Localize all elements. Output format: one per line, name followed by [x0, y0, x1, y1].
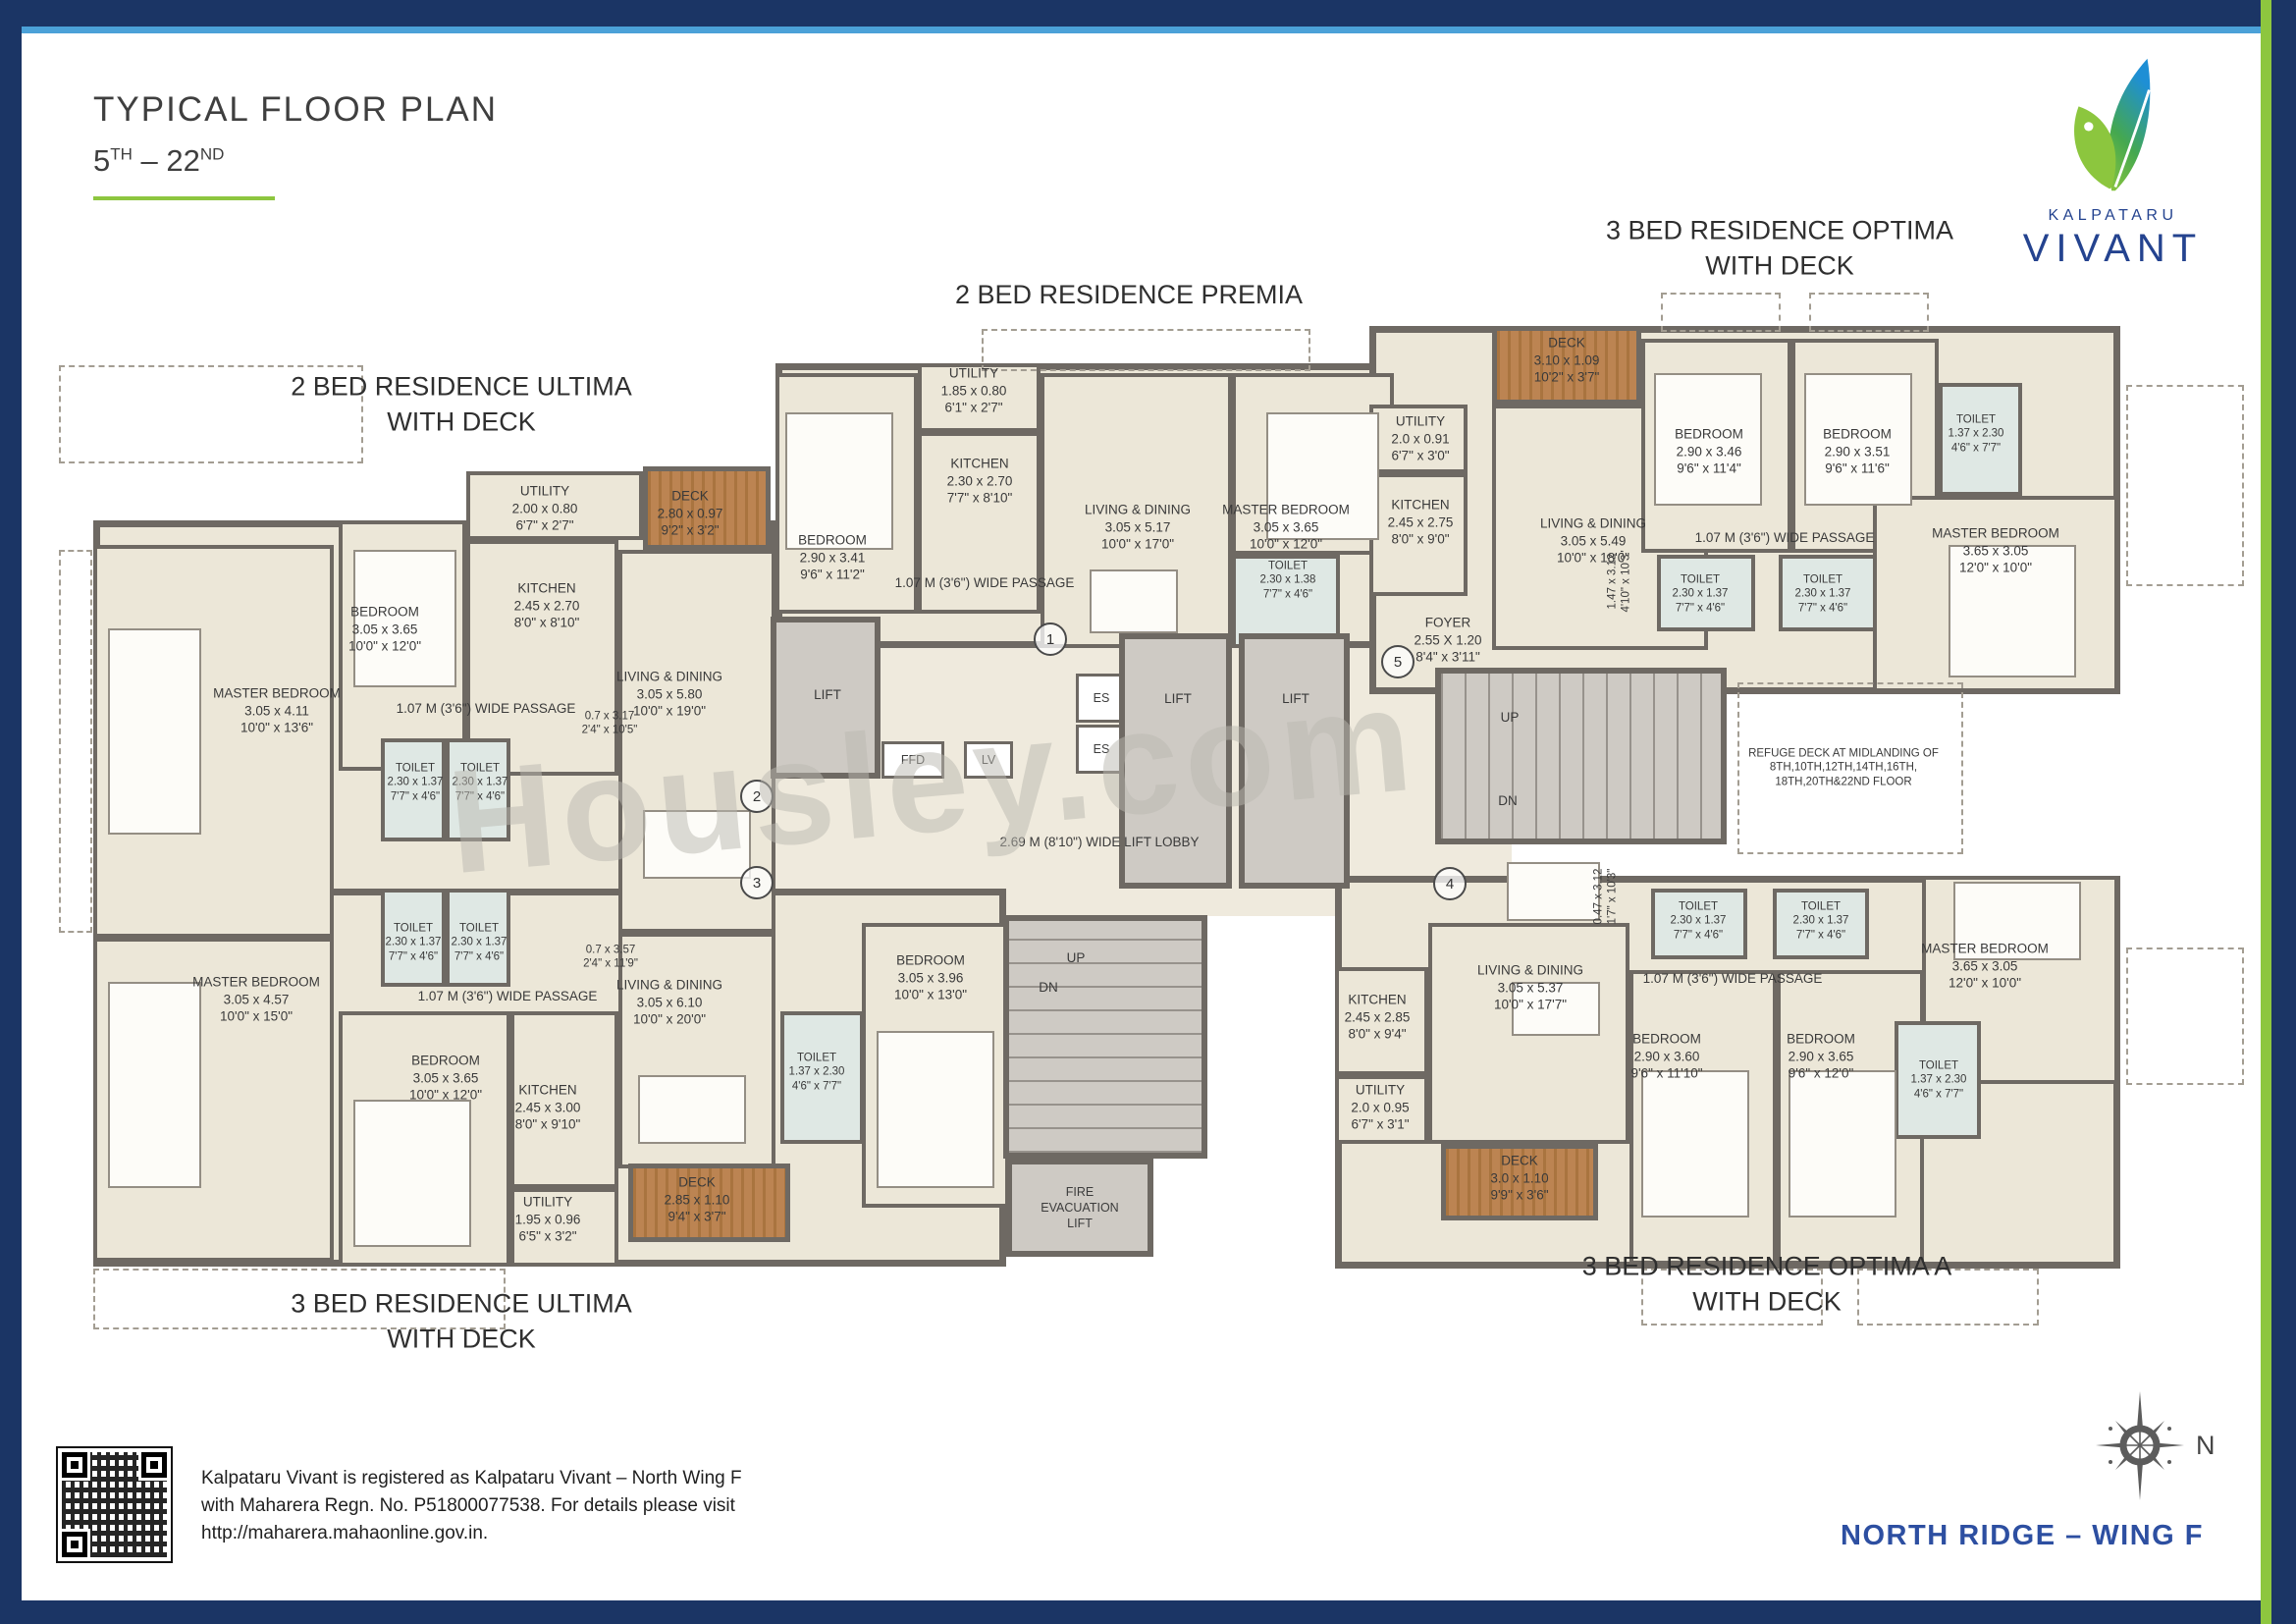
- room-label: DECK3.0 x 1.109'9" x 3'6": [1490, 1153, 1548, 1205]
- room-label: TOILET2.30 x 1.377'7" x 4'6": [1673, 572, 1729, 615]
- logo-project-name: VIVANT: [2007, 227, 2218, 271]
- room-label: DECK2.80 x 0.979'2" x 3'2": [658, 488, 723, 540]
- apartment-title-3bed-optima-a: 3 BED RESIDENCE OPTIMA A WITH DECK: [1582, 1249, 1952, 1321]
- floor-from: 5: [93, 143, 110, 178]
- kalpataru-vivant-logo: KALPATARU VIVANT: [2007, 51, 2218, 271]
- room-label: UTILITY1.95 x 0.966'5" x 3'2": [515, 1194, 581, 1246]
- floor-range: 5TH – 22ND: [93, 143, 224, 179]
- rera-registration-text: Kalpataru Vivant is registered as Kalpat…: [201, 1465, 742, 1547]
- apartment-title-line: 3 BED RESIDENCE OPTIMA A: [1582, 1249, 1952, 1284]
- refuge-deck-label: REFUGE DECK AT MIDLANDING OF8TH,10TH,12T…: [1748, 746, 1939, 788]
- border-top-accent: [0, 27, 2296, 33]
- rera-line: Kalpataru Vivant is registered as Kalpat…: [201, 1465, 742, 1492]
- room-label: TOILET2.30 x 1.377'7" x 4'6": [1795, 572, 1851, 615]
- apartment-title-line: 2 BED RESIDENCE ULTIMA: [291, 369, 632, 405]
- room-label: UTILITY2.0 x 0.916'7" x 3'0": [1391, 413, 1449, 465]
- bed-icon: [108, 628, 201, 835]
- room-label: LIVING & DINING3.05 x 6.1010'0" x 20'0": [616, 977, 722, 1029]
- balcony-outline: [2126, 947, 2244, 1085]
- passage-label: 1.07 M (3'6") WIDE PASSAGE: [1695, 529, 1875, 547]
- lift-label: LIFT: [814, 686, 841, 704]
- stairs-down-label: DN: [1039, 979, 1058, 997]
- stairs-up-label: UP: [1067, 949, 1086, 967]
- balcony-outline: [2126, 385, 2244, 586]
- dim-label: 1.47 x 3.124'10" x 10'3": [1606, 550, 1634, 612]
- rera-line: with Maharera Regn. No. P51800077538. Fo…: [201, 1492, 742, 1520]
- bed-icon: [1641, 1070, 1749, 1218]
- room-label: TOILET1.37 x 2.304'6" x 7'7": [789, 1051, 845, 1093]
- staircase: [1003, 915, 1207, 1159]
- room-label: LIVING & DINING3.05 x 5.1710'0" x 17'0": [1085, 502, 1191, 554]
- leaf-logo-icon: [2058, 51, 2168, 198]
- floor-plan-page: TYPICAL FLOOR PLAN 5TH – 22ND KALPATARU …: [0, 0, 2296, 1624]
- page-title: TYPICAL FLOOR PLAN: [93, 90, 498, 130]
- apartment-title-line: WITH DECK: [291, 405, 632, 440]
- apartment-title-3bed-optima: 3 BED RESIDENCE OPTIMA WITH DECK: [1606, 213, 1953, 285]
- balcony-outline: [982, 329, 1310, 371]
- room-label: KITCHEN2.45 x 2.858'0" x 9'4": [1345, 992, 1411, 1044]
- dining-table-icon: [1090, 569, 1178, 633]
- room-label: MASTER BEDROOM3.05 x 3.6510'0" x 12'0": [1222, 502, 1350, 554]
- passage-label: 1.07 M (3'6") WIDE PASSAGE: [397, 700, 576, 718]
- room-label: BEDROOM3.05 x 3.6510'0" x 12'0": [409, 1053, 482, 1105]
- room-label: BEDROOM2.90 x 3.419'6" x 11'2": [798, 532, 867, 584]
- apartment-title-3bed-ultima: 3 BED RESIDENCE ULTIMA WITH DECK: [291, 1286, 632, 1358]
- room-label: BEDROOM2.90 x 3.469'6" x 11'4": [1675, 426, 1743, 478]
- qr-eye: [141, 1452, 167, 1478]
- room-label: TOILET2.30 x 1.377'7" x 4'6": [386, 921, 442, 963]
- bed-icon: [877, 1031, 994, 1188]
- room-label: UTILITY2.00 x 0.806'7" x 2'7": [512, 483, 578, 535]
- apartment-title-line: 3 BED RESIDENCE ULTIMA: [291, 1286, 632, 1322]
- fire-lift-label: LIFT: [1041, 1216, 1118, 1231]
- apartment-title-2bed-ultima: 2 BED RESIDENCE ULTIMA WITH DECK: [291, 369, 632, 441]
- apartment-title-line: 3 BED RESIDENCE OPTIMA: [1606, 213, 1953, 248]
- room-label: FOYER2.55 X 1.208'4" x 3'11": [1414, 615, 1481, 667]
- fire-lift-label: FIRE: [1041, 1184, 1118, 1200]
- border-right: [2271, 0, 2296, 1624]
- bed-icon: [108, 982, 201, 1188]
- room-label: MASTER BEDROOM3.65 x 3.0512'0" x 10'0": [1921, 941, 2049, 993]
- apartment-title-line: 2 BED RESIDENCE PREMIA: [955, 277, 1303, 312]
- floor-to: 22: [166, 143, 199, 178]
- qr-eye: [62, 1532, 87, 1557]
- room-label: MASTER BEDROOM3.05 x 4.5710'0" x 15'0": [192, 974, 320, 1026]
- room-label: TOILET2.30 x 1.387'7" x 4'6": [1260, 559, 1316, 601]
- passage-label: 1.07 M (3'6") WIDE PASSAGE: [418, 988, 598, 1005]
- dim-label: 0.47 x 3.121'7" x 10'3": [1592, 869, 1621, 925]
- bed-icon: [1789, 1070, 1896, 1218]
- room-label: KITCHEN2.30 x 2.707'7" x 8'10": [947, 456, 1013, 508]
- room-label: KITCHEN2.45 x 3.008'0" x 9'10": [515, 1082, 581, 1134]
- logo-brand-text: KALPATARU: [2007, 207, 2218, 225]
- passage-label: 1.07 M (3'6") WIDE PASSAGE: [895, 574, 1075, 592]
- apartment-title-2bed-premia: 2 BED RESIDENCE PREMIA: [955, 277, 1303, 312]
- door-marker-4: 4: [1433, 867, 1467, 900]
- header-underline: [93, 196, 275, 200]
- floor-range-dash: –: [141, 143, 158, 178]
- room-label: BEDROOM2.90 x 3.609'6" x 11'10": [1630, 1031, 1702, 1083]
- dining-table-icon: [1507, 862, 1600, 921]
- apartment-title-line: WITH DECK: [1606, 248, 1953, 284]
- bed-icon: [353, 1100, 471, 1247]
- room-label: UTILITY2.0 x 0.956'7" x 3'1": [1351, 1082, 1409, 1134]
- dim-label: 0.7 x 3.572'4" x 11'9": [583, 944, 638, 972]
- room-label: KITCHEN2.45 x 2.758'0" x 9'0": [1388, 497, 1454, 549]
- room-label: DECK2.85 x 1.109'4" x 3'7": [665, 1174, 730, 1226]
- border-top: [0, 0, 2296, 27]
- room-label: BEDROOM2.90 x 3.659'6" x 12'0": [1787, 1031, 1855, 1083]
- room-label: DECK3.10 x 1.0910'2" x 3'7": [1534, 335, 1600, 387]
- rera-url: http://maharera.mahaonline.gov.in.: [201, 1520, 742, 1547]
- qr-code: [56, 1446, 173, 1563]
- room-label: LIVING & DINING3.05 x 5.3710'0" x 17'7": [1477, 962, 1583, 1014]
- fire-evacuation-lift: FIRE EVACUATION LIFT: [1006, 1159, 1153, 1257]
- stairs-down-label: DN: [1498, 792, 1518, 810]
- floor-from-suffix: TH: [110, 145, 133, 164]
- door-marker-1: 1: [1034, 623, 1067, 656]
- compass-north-label: N: [2196, 1431, 2216, 1460]
- compass: N: [2076, 1389, 2223, 1507]
- apartment-title-line: WITH DECK: [1582, 1284, 1952, 1320]
- apartment-title-line: WITH DECK: [291, 1322, 632, 1357]
- room-label: KITCHEN2.45 x 2.708'0" x 8'10": [514, 580, 580, 632]
- staircase: [1435, 668, 1727, 844]
- room-label: TOILET2.30 x 1.377'7" x 4'6": [1671, 899, 1727, 942]
- room-label: TOILET2.30 x 1.377'7" x 4'6": [388, 761, 444, 803]
- passage-label: 1.07 M (3'6") WIDE PASSAGE: [1643, 970, 1823, 988]
- room-label: TOILET1.37 x 2.304'6" x 7'7": [1949, 412, 2004, 455]
- floor-to-suffix: ND: [200, 145, 225, 164]
- room-label: TOILET2.30 x 1.377'7" x 4'6": [1793, 899, 1849, 942]
- room-label: TOILET2.30 x 1.377'7" x 4'6": [452, 921, 507, 963]
- room-label: BEDROOM3.05 x 3.9610'0" x 13'0": [894, 952, 967, 1004]
- room-label: UTILITY1.85 x 0.806'1" x 2'7": [941, 365, 1007, 417]
- stairs-up-label: UP: [1501, 709, 1520, 727]
- fire-lift-label: EVACUATION: [1041, 1200, 1118, 1216]
- room-label: BEDROOM2.90 x 3.519'6" x 11'6": [1823, 426, 1892, 478]
- wing-title: NORTH RIDGE – WING F: [1728, 1520, 2204, 1552]
- dining-table-icon: [638, 1075, 746, 1144]
- bed-icon: [785, 412, 893, 550]
- room-label: BEDROOM3.05 x 3.6510'0" x 12'0": [348, 604, 421, 656]
- room-label: MASTER BEDROOM3.05 x 4.1110'0" x 13'6": [213, 685, 341, 737]
- balcony-outline: [1809, 293, 1929, 332]
- room-label: TOILET1.37 x 2.304'6" x 7'7": [1911, 1058, 1967, 1101]
- balcony-outline: [59, 550, 92, 933]
- compass-rose-icon: N: [2076, 1389, 2223, 1502]
- room-label: MASTER BEDROOM3.65 x 3.0512'0" x 10'0": [1932, 525, 2059, 577]
- border-bottom: [0, 1600, 2296, 1624]
- balcony-outline: [1661, 293, 1781, 332]
- qr-eye: [62, 1452, 87, 1478]
- border-left: [0, 0, 22, 1624]
- border-right-accent: [2261, 0, 2271, 1624]
